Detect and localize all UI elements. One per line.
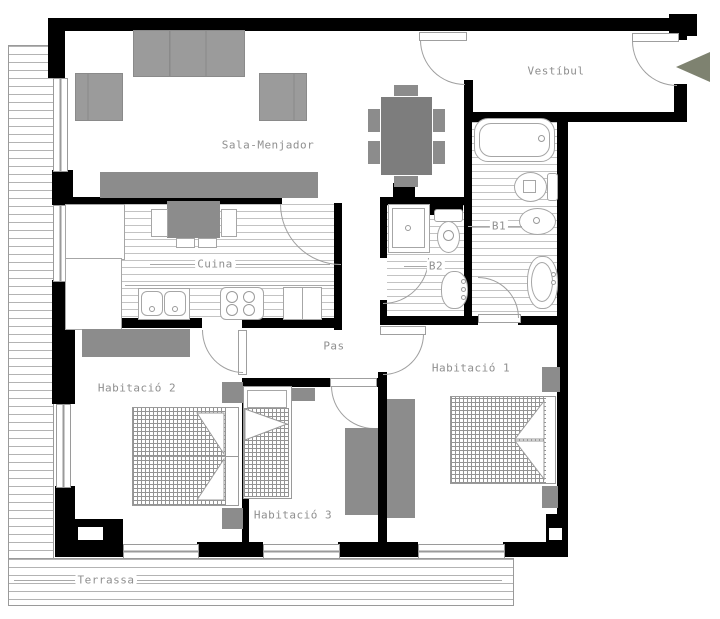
wardrobe-hab1	[387, 399, 415, 518]
dining-chair-left-2	[368, 141, 380, 164]
window-sala-left	[53, 78, 68, 172]
bed-fold	[197, 459, 224, 500]
dining-table	[381, 97, 432, 175]
hab2-door-arc	[202, 330, 243, 373]
bed-hab3	[243, 386, 292, 499]
terrace-left-deck	[8, 45, 54, 560]
room-label-hab3: Habitació 3	[252, 509, 334, 522]
bed-hab2-a	[132, 407, 239, 457]
toilet-b1-tank	[547, 173, 558, 201]
bed-fold	[245, 409, 287, 440]
bed-hab2-b	[132, 456, 239, 506]
hab3-door-arc	[331, 386, 374, 429]
dining-chair-top	[394, 85, 418, 96]
washbasin-b2-tap-3	[461, 295, 466, 300]
entry-arrow-icon	[676, 52, 710, 82]
wall-bottom-1	[197, 542, 263, 557]
armchair-right	[259, 73, 307, 121]
room-label-hab1: Habitació 1	[430, 362, 512, 375]
burner-1	[226, 291, 238, 303]
pillow-hab3	[247, 390, 287, 408]
room-label-pas: Pas	[321, 340, 346, 353]
wardrobe-hab3	[345, 428, 378, 515]
bed-fold	[197, 413, 224, 454]
kitchen-chair-left	[151, 209, 168, 237]
sink-drain-1	[149, 306, 155, 312]
burner-3	[226, 304, 238, 316]
washbasin-b1-tap-2	[551, 280, 556, 285]
room-label-b2: B2	[427, 260, 445, 273]
toilet-b1-flush	[523, 180, 536, 193]
washbasin-b1-inner	[531, 262, 553, 302]
room-label-hab2: Habitació 2	[96, 382, 178, 395]
dining-chair-right-2	[433, 141, 445, 164]
wall-b2-left-upper	[380, 197, 387, 258]
toilet-b2-flush	[443, 230, 454, 241]
sideboard	[100, 172, 318, 198]
bed-hab1	[450, 396, 556, 484]
leader-terrassa-left	[14, 580, 75, 581]
nightstand-hab2-bottom	[222, 508, 243, 529]
bidet-b1-drain	[533, 217, 540, 224]
room-label-vestibul: Vestíbul	[526, 65, 587, 78]
floor-plan: Sala-Menjador Vestíbul Cuina Pas B1 B2 H…	[0, 0, 720, 619]
washbasin-b2-tap-2	[461, 287, 466, 292]
shower-drain	[405, 225, 411, 231]
nightstand-hab2-top	[222, 382, 243, 403]
bed-fold	[515, 401, 544, 439]
window-hab3-bottom	[263, 544, 340, 559]
wall-right	[557, 112, 568, 522]
leader-b1-right	[508, 226, 522, 227]
nightstand-hab1-top	[542, 367, 560, 392]
wall-hab3-hab1	[378, 372, 387, 545]
wall-b1-bottom-west	[464, 316, 478, 325]
window-hab2-left	[56, 404, 71, 488]
wall-corner-bl-1	[55, 486, 75, 557]
wall-b1-bottom-east	[518, 316, 557, 325]
hab1-door-arc	[383, 334, 424, 375]
wall-corner-bl-notch	[78, 527, 103, 540]
armchair-left	[75, 73, 123, 121]
wall-topleft-stub	[48, 18, 65, 78]
washbasin-b2-tap-1	[461, 279, 466, 284]
wall-sala-vestibule	[464, 80, 473, 114]
kitchen-sink-basin-1	[141, 291, 163, 316]
bed-fold	[515, 441, 544, 479]
room-label-sala: Sala-Menjador	[220, 139, 317, 152]
sink-drain-2	[172, 306, 178, 312]
room-label-cuina: Cuina	[195, 258, 235, 271]
kitchen-chair-tucked-1	[176, 238, 195, 248]
wall-left-1	[52, 170, 73, 205]
burner-4	[243, 304, 255, 316]
entrance-door-arc	[632, 41, 677, 86]
room-label-terrassa: Terrassa	[76, 574, 137, 587]
leader-b1-left	[468, 226, 490, 227]
wall-b2-bottom	[380, 316, 464, 325]
window-hab1-bottom	[418, 544, 505, 559]
nightstand-hab1-bottom	[542, 486, 558, 508]
dining-chair-right-1	[433, 109, 445, 132]
dining-chair-left-1	[368, 109, 380, 132]
kitchen-cabinet-right	[283, 287, 322, 320]
shelf-hab3	[288, 388, 315, 401]
sofa	[133, 30, 245, 77]
dining-chair-bottom	[394, 176, 418, 187]
kitchen-table	[167, 201, 220, 238]
kitchen-chair-tucked-2	[198, 238, 217, 248]
leader-terrassa-right	[137, 580, 502, 581]
leader-cuina-right	[236, 264, 330, 265]
leader-b2-left	[404, 266, 427, 267]
kitchen-cabinet-left-1	[65, 204, 125, 260]
kitchen-chair-right	[221, 209, 237, 237]
kitchen-cabinet-left-2	[65, 258, 122, 330]
window-hab2-bottom	[123, 544, 199, 559]
wardrobe-hab2	[82, 329, 190, 357]
washbasin-b1-tap-1	[551, 272, 556, 277]
burner-2	[243, 291, 255, 303]
bathtub-drain	[538, 135, 545, 142]
vestibule-sala-door-arc	[420, 40, 465, 85]
wall-vestibule-right	[674, 84, 687, 122]
leader-cuina-left	[150, 264, 195, 265]
kitchen-counter-edge	[125, 285, 334, 286]
kitchen-sink-basin-2	[164, 291, 186, 316]
room-label-b1: B1	[490, 220, 508, 233]
wall-right-corner-notch	[549, 528, 562, 540]
